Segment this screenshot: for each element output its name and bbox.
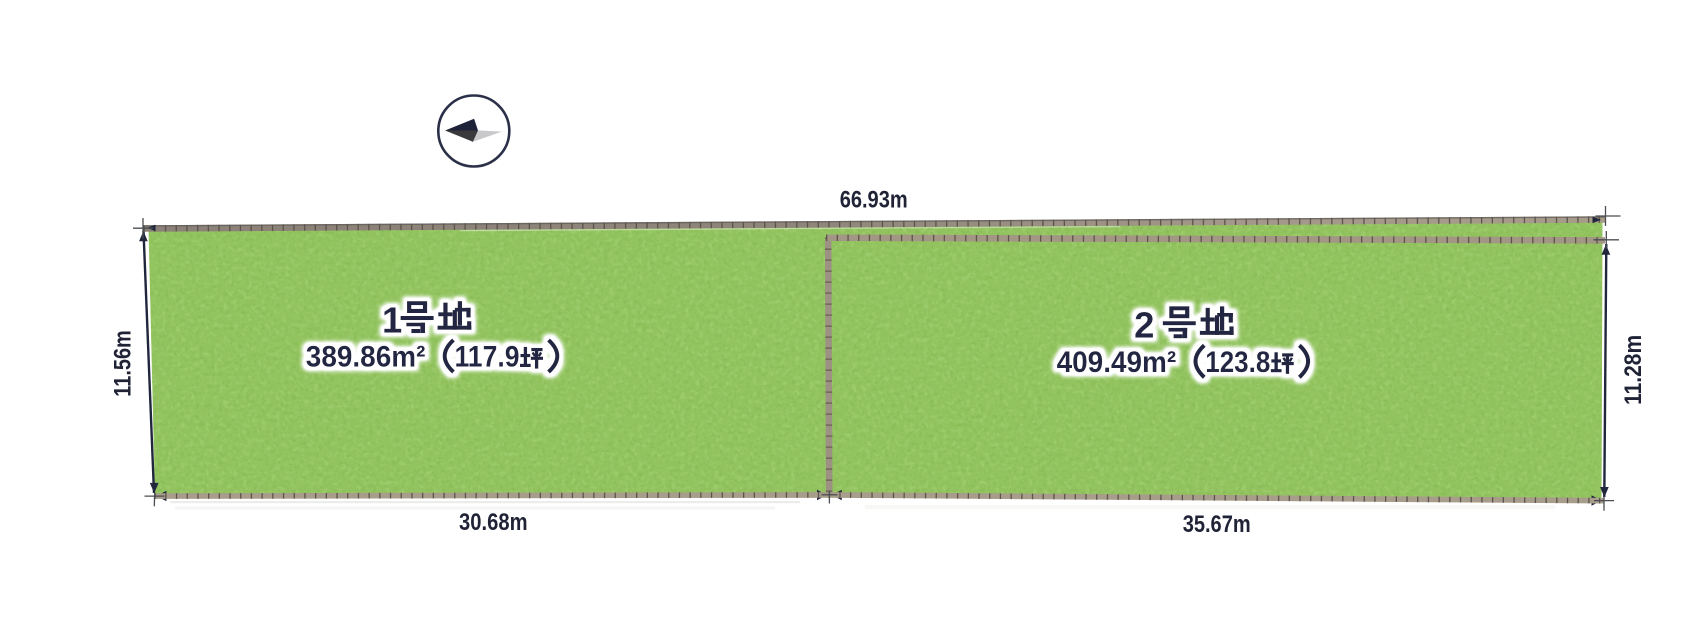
svg-text:30.68m: 30.68m <box>459 509 528 536</box>
svg-text:11.28m: 11.28m <box>1620 335 1647 405</box>
svg-text:123.8: 123.8 <box>1205 346 1270 379</box>
svg-text:389.86m²: 389.86m² <box>306 341 426 374</box>
svg-text:11.56m: 11.56m <box>110 330 137 397</box>
svg-text:409.49m²: 409.49m² <box>1057 346 1177 379</box>
svg-text:1: 1 <box>382 299 402 340</box>
svg-text:35.67m: 35.67m <box>1183 511 1251 538</box>
svg-text:117.9: 117.9 <box>455 341 520 374</box>
svg-text:2: 2 <box>1134 305 1154 346</box>
svg-text:66.93m: 66.93m <box>840 186 908 213</box>
